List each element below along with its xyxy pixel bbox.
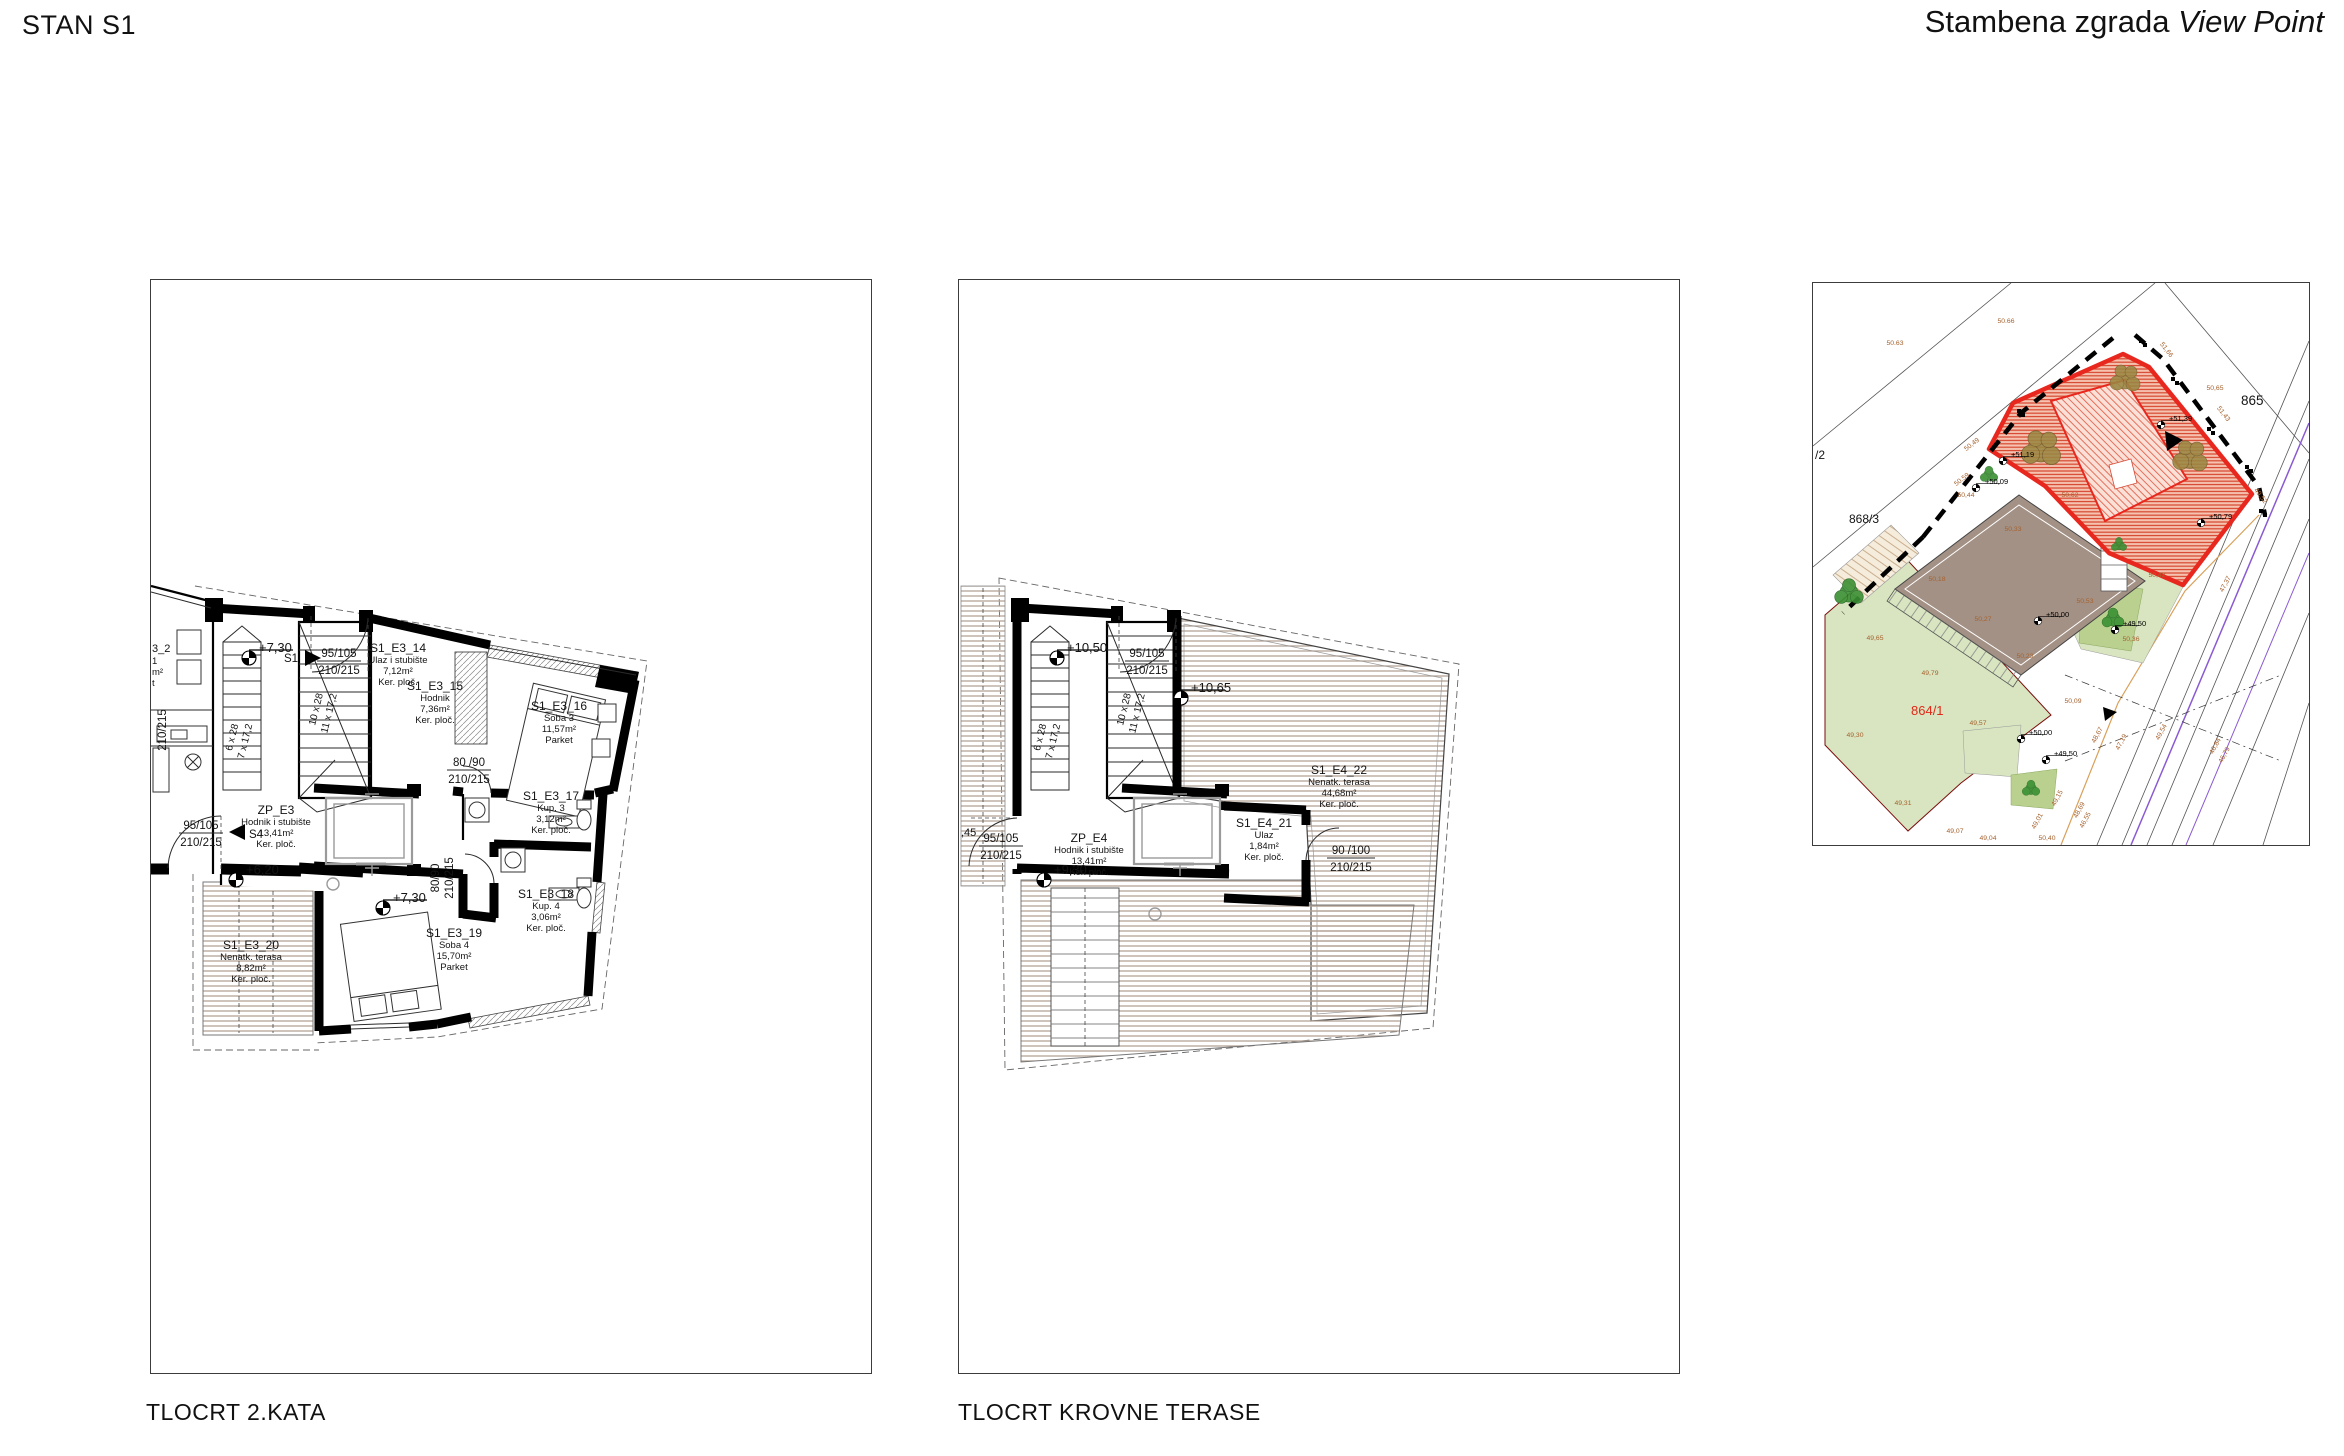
spot: 50,44 xyxy=(1957,492,1974,499)
svg-text:S1_E4_22: S1_E4_22 xyxy=(1311,763,1367,777)
spot: 50,27 xyxy=(1974,616,1991,623)
fragment: 3_2 xyxy=(152,643,170,655)
svg-text:Parket: Parket xyxy=(440,962,468,973)
svg-text:Hodnik: Hodnik xyxy=(420,693,450,704)
spot: 50,53 xyxy=(2076,598,2093,605)
spot: 50,23 xyxy=(2016,653,2033,660)
svg-text:S1_E3_17: S1_E3_17 xyxy=(523,789,579,803)
parcel-868: 868/3 xyxy=(1849,512,1879,526)
site-level: +49,50 xyxy=(2054,749,2077,758)
spot: 50,62 xyxy=(2061,492,2078,499)
svg-text:7,12m²: 7,12m² xyxy=(383,666,413,677)
parcel-864: 864/1 xyxy=(1911,703,1944,718)
spot: 50,18 xyxy=(1928,576,1945,583)
svg-text:Soba 3: Soba 3 xyxy=(544,713,574,724)
svg-text:S1_E3_20: S1_E3_20 xyxy=(223,938,279,952)
spot: 49,04 xyxy=(1979,835,1996,842)
fragment: ,45 xyxy=(961,827,976,839)
drawing-sheet: STAN S1 Stambena zgrada View Point xyxy=(0,0,2344,1456)
svg-text:1,84m²: 1,84m² xyxy=(1249,841,1279,852)
door-dim: 95/105 xyxy=(321,648,356,660)
svg-text:Nenatk. terasa: Nenatk. terasa xyxy=(220,952,282,963)
site-level: +50,00 xyxy=(2029,728,2052,737)
site-level: +50,00 xyxy=(2046,610,2069,619)
svg-text:S1_E3_16: S1_E3_16 xyxy=(531,699,587,713)
sheet-title: STAN S1 xyxy=(22,10,136,41)
spot: 50.63 xyxy=(1886,340,1903,347)
svg-text:Soba 4: Soba 4 xyxy=(439,940,469,951)
svg-text:Ker. ploč.: Ker. ploč. xyxy=(1069,867,1109,878)
caption-second-floor: TLOCRT 2.KATA xyxy=(146,1399,326,1426)
adjacent-unit-fragment xyxy=(151,586,213,792)
entry-s1-label: S1 xyxy=(284,653,298,665)
spot: 49,31 xyxy=(1894,800,1911,807)
spot: 50,33 xyxy=(2004,526,2021,533)
site-level: +51,19 xyxy=(2011,450,2034,459)
svg-text:Ker. ploč.: Ker. ploč. xyxy=(231,974,271,985)
door-dim: 210/215 xyxy=(318,665,360,677)
spot: 49,57 xyxy=(1969,720,1986,727)
spot: 50,65 xyxy=(2206,385,2223,392)
svg-text:Ulaz i stubište: Ulaz i stubište xyxy=(368,655,427,666)
door-dim: 210/215 xyxy=(1126,665,1168,677)
level-mid: +6,20 xyxy=(246,862,279,877)
door-dim: 210/215 xyxy=(448,774,490,786)
site-plan: 865 /2 868/3 864/1 +50,09 +51,19 +51,39 … xyxy=(1812,282,2310,846)
svg-text:Hodnik i stubište: Hodnik i stubište xyxy=(1054,845,1124,856)
site-level: +51,39 xyxy=(2169,414,2192,423)
level-bottom: +7,30 xyxy=(393,890,426,905)
door-dim: 210/215 xyxy=(444,857,456,899)
fragment: m² xyxy=(152,667,163,678)
spot: 51,43 xyxy=(2215,405,2231,423)
spot: 50,49 xyxy=(1963,437,1981,453)
svg-text:Parket: Parket xyxy=(545,735,573,746)
svg-text:S1_E3_19: S1_E3_19 xyxy=(426,926,482,940)
door-dim: 95/105 xyxy=(183,820,218,832)
door-dim: 80 /90 xyxy=(453,757,485,769)
spot: 47,37 xyxy=(2219,575,2233,593)
svg-text:8,82m²: 8,82m² xyxy=(236,963,266,974)
spot: 50,42 xyxy=(2148,572,2165,579)
project-title-italic: View Point xyxy=(2178,4,2324,39)
svg-text:S1_E4_21: S1_E4_21 xyxy=(1236,816,1292,830)
svg-text:S1_E3_14: S1_E3_14 xyxy=(370,641,426,655)
spot: 49,01 xyxy=(2031,812,2045,830)
svg-text:S1_E3_18: S1_E3_18 xyxy=(518,887,574,901)
door-dim: 210/215 xyxy=(157,709,169,751)
spot: 46,79 xyxy=(2218,746,2232,764)
neighbor-fragments: 3_2 1 m² t xyxy=(152,643,170,689)
svg-text:Ker. ploč.: Ker. ploč. xyxy=(1319,799,1359,810)
door-dim: 95/105 xyxy=(983,833,1018,845)
spot: 50,36 xyxy=(2122,636,2139,643)
svg-text:Ker. ploč.: Ker. ploč. xyxy=(415,715,455,726)
svg-text:Ker. ploč.: Ker. ploč. xyxy=(256,839,296,850)
spot: 49,07 xyxy=(1946,828,1963,835)
svg-text:3,06m²: 3,06m² xyxy=(531,912,561,923)
svg-text:S1_E3_15: S1_E3_15 xyxy=(407,679,463,693)
floorplan-roof-terrace: +10,50 +10,65 +9,30 95/105 210/215 95/10… xyxy=(958,279,1680,1374)
svg-text:7,36m²: 7,36m² xyxy=(420,704,450,715)
svg-text:13,41m²: 13,41m² xyxy=(1072,856,1107,867)
project-title: Stambena zgrada View Point xyxy=(1925,4,2324,40)
svg-text:Nenatk. terasa: Nenatk. terasa xyxy=(1308,777,1370,788)
svg-text:13,41m²: 13,41m² xyxy=(259,828,294,839)
door-dim: 210/215 xyxy=(180,837,222,849)
parcel-865: 865 xyxy=(2241,393,2264,408)
svg-text:11,57m²: 11,57m² xyxy=(542,724,576,735)
spot: 49,79 xyxy=(1921,670,1938,677)
floorplan-second-floor: +7,30 +6,20 +7,30 S1 S4 95/105 210/215 9… xyxy=(150,279,872,1374)
spot: 50.66 xyxy=(1997,318,2014,325)
door-dim: 80/90 xyxy=(430,864,442,893)
fragment: t xyxy=(152,678,155,689)
svg-text:Ker. ploč.: Ker. ploč. xyxy=(1244,852,1284,863)
svg-text:Kup. 4: Kup. 4 xyxy=(532,901,559,912)
svg-text:ZP_E4: ZP_E4 xyxy=(1071,831,1108,845)
spot: 49,30 xyxy=(1846,732,1863,739)
svg-text:Kup. 3: Kup. 3 xyxy=(537,803,564,814)
fragment: 1 xyxy=(152,656,157,667)
svg-text:44,68m²: 44,68m² xyxy=(1322,788,1357,799)
svg-text:Hodnik i stubište: Hodnik i stubište xyxy=(241,817,311,828)
site-level: +49,50 xyxy=(2123,619,2146,628)
door-dim: 90 /100 xyxy=(1332,845,1370,857)
room-label-ulaz: S1_E4_21 Ulaz 1,84m² Ker. ploč. xyxy=(1236,816,1292,863)
level-top: +10,50 xyxy=(1067,640,1107,655)
svg-text:ZP_E3: ZP_E3 xyxy=(258,803,295,817)
svg-text:15,70m²: 15,70m² xyxy=(437,951,472,962)
spot: 50,09 xyxy=(2064,698,2081,705)
spot: 47,19 xyxy=(2115,733,2129,751)
spot: 50,40 xyxy=(2038,835,2055,842)
spot: 46,84 xyxy=(2209,737,2223,755)
spot: 49,65 xyxy=(1866,635,1883,642)
caption-roof-terrace: TLOCRT KROVNE TERASE xyxy=(958,1399,1261,1426)
site-level: +50,09 xyxy=(1985,477,2008,486)
door-dim: 210/215 xyxy=(1330,862,1372,874)
level-mid: +10,65 xyxy=(1191,680,1231,695)
project-title-regular: Stambena zgrada xyxy=(1925,4,2170,39)
svg-text:3,12m²: 3,12m² xyxy=(536,814,566,825)
svg-text:Ker. ploč.: Ker. ploč. xyxy=(526,923,566,934)
svg-text:Ker. ploč.: Ker. ploč. xyxy=(531,825,571,836)
site-level: +50,79 xyxy=(2209,512,2232,521)
spot: 49,52 xyxy=(2252,487,2268,505)
door-dim: 210/215 xyxy=(980,850,1022,862)
parcel-2: /2 xyxy=(1815,448,1825,462)
door-dim: 95/105 xyxy=(1129,648,1164,660)
terrace-lower xyxy=(1021,880,1414,1062)
svg-text:Ulaz: Ulaz xyxy=(1254,830,1273,841)
